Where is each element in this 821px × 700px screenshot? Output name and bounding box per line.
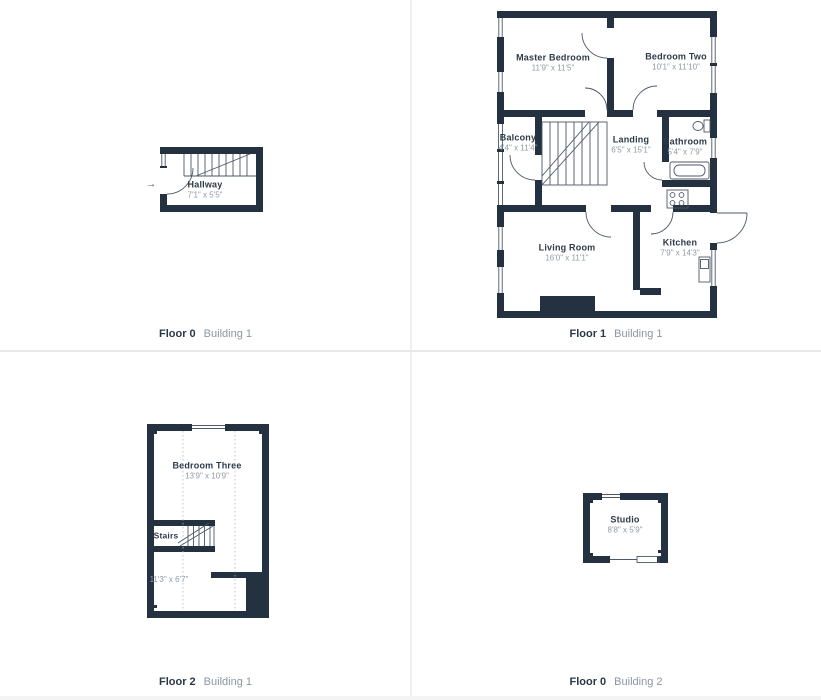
room-label-landing: Landing 6'5" x 15'1": [611, 135, 650, 156]
floor-caption: Floor 1Building 1: [411, 328, 821, 340]
room-dims: 7'9" x 14'3": [660, 249, 699, 259]
floorplan-panel-floor0-building1: → Hallway 7'1" x 5'5" Floor 0Building 1: [0, 0, 411, 352]
floor-caption: Floor 0Building 2: [411, 676, 821, 688]
bathtub-icon: [670, 162, 709, 179]
room-label-stairs: Stairs: [154, 531, 179, 542]
floorplan-panel-floor1-building1: Master Bedroom 11'9" x 11'5" Bedroom Two…: [411, 0, 821, 352]
floorplan-panel-floor2-building1: Bedroom Three 13'9" x 10'9" Stairs 11'3"…: [0, 352, 411, 700]
floor-caption: Floor 0Building 1: [0, 328, 411, 340]
room-label-loft-dims: 11'3" x 6'7": [150, 575, 189, 585]
room-dims: 5'4" x 7'9": [663, 148, 707, 158]
room-name: Kitchen: [660, 238, 699, 249]
room-dims: 13'9" x 10'9": [172, 472, 241, 482]
floorplan-drawing-first-floor: [411, 0, 821, 352]
room-label-bedroom-two: Bedroom Two 10'1" x 11'10": [645, 52, 707, 73]
room-dims: 10'1" x 11'10": [645, 63, 707, 73]
floor-label: Floor 0: [570, 676, 607, 688]
door-arc-icon: [651, 212, 673, 234]
floorplan-drawing-hallway: [0, 0, 411, 352]
toilet-icon: [693, 120, 710, 132]
room-name: Bedroom Three: [172, 461, 241, 472]
room-dims: 11'9" x 11'5": [516, 64, 590, 74]
building-label: Building 1: [204, 328, 252, 340]
room-name: Stairs: [154, 531, 179, 542]
room-label-studio: Studio 8'8" x 5'9": [608, 515, 643, 536]
floor-label: Floor 2: [159, 676, 196, 688]
room-name: Bedroom Two: [645, 52, 707, 63]
door-arc-icon: [633, 86, 657, 110]
floor-caption: Floor 2Building 1: [0, 676, 411, 688]
room-label-balcony: Balcony 4'4" x 11'4": [499, 133, 538, 154]
building-label: Building 1: [614, 328, 662, 340]
building-label: Building 2: [614, 676, 662, 688]
room-name: Studio: [608, 515, 643, 526]
room-name: Landing: [611, 135, 650, 146]
room-name: Master Bedroom: [516, 53, 590, 64]
floorplan-panel-floor0-building2: Studio 8'8" x 5'9" Floor 0Building 2: [411, 352, 821, 700]
room-label-hallway: Hallway 7'1" x 5'5": [188, 180, 223, 201]
room-name: Balcony: [499, 133, 538, 144]
sink-icon: [699, 257, 710, 282]
room-dims: 4'4" x 11'4": [499, 144, 538, 154]
entry-arrow-icon: →: [146, 178, 157, 190]
room-label-living-room: Living Room 16'0" x 11'1": [539, 243, 596, 264]
room-label-kitchen: Kitchen 7'9" x 14'3": [660, 238, 699, 259]
room-dims: 11'3" x 6'7": [150, 575, 189, 585]
stairs-icon: [542, 122, 607, 185]
floor-label: Floor 1: [570, 328, 607, 340]
building-label: Building 1: [204, 676, 252, 688]
room-dims: 8'8" x 5'9": [608, 526, 643, 536]
room-label-master-bedroom: Master Bedroom 11'9" x 11'5": [516, 53, 590, 74]
door-arc-icon: [717, 213, 747, 243]
door-arc-icon: [644, 162, 662, 180]
room-name: Living Room: [539, 243, 596, 254]
room-dims: 7'1" x 5'5": [188, 191, 223, 201]
door-arc-icon: [586, 212, 611, 237]
floor-label: Floor 0: [159, 328, 196, 340]
room-dims: 16'0" x 11'1": [539, 254, 596, 264]
room-name: Hallway: [188, 180, 223, 191]
door-arc-icon: [585, 88, 607, 110]
room-name: Bathroom: [663, 137, 707, 148]
floorplan-drawing-second-floor: [0, 352, 411, 700]
room-dims: 6'5" x 15'1": [611, 146, 650, 156]
room-label-bathroom: Bathroom 5'4" x 7'9": [663, 137, 707, 158]
room-label-bedroom-three: Bedroom Three 13'9" x 10'9": [172, 461, 241, 482]
door-arc-icon: [510, 155, 535, 180]
walls: [147, 424, 269, 618]
